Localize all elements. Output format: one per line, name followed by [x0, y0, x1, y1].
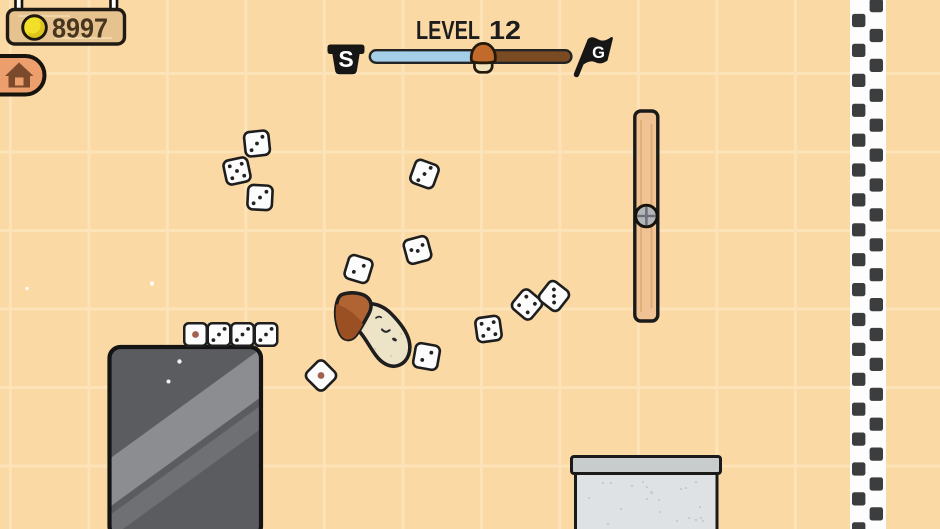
- svg-text:S: S: [338, 46, 353, 72]
- svg-text:12: 12: [489, 15, 521, 45]
- svg-text:G: G: [592, 44, 605, 62]
- svg-text:8997: 8997: [52, 13, 108, 44]
- svg-text:LEVEL: LEVEL: [416, 15, 480, 45]
